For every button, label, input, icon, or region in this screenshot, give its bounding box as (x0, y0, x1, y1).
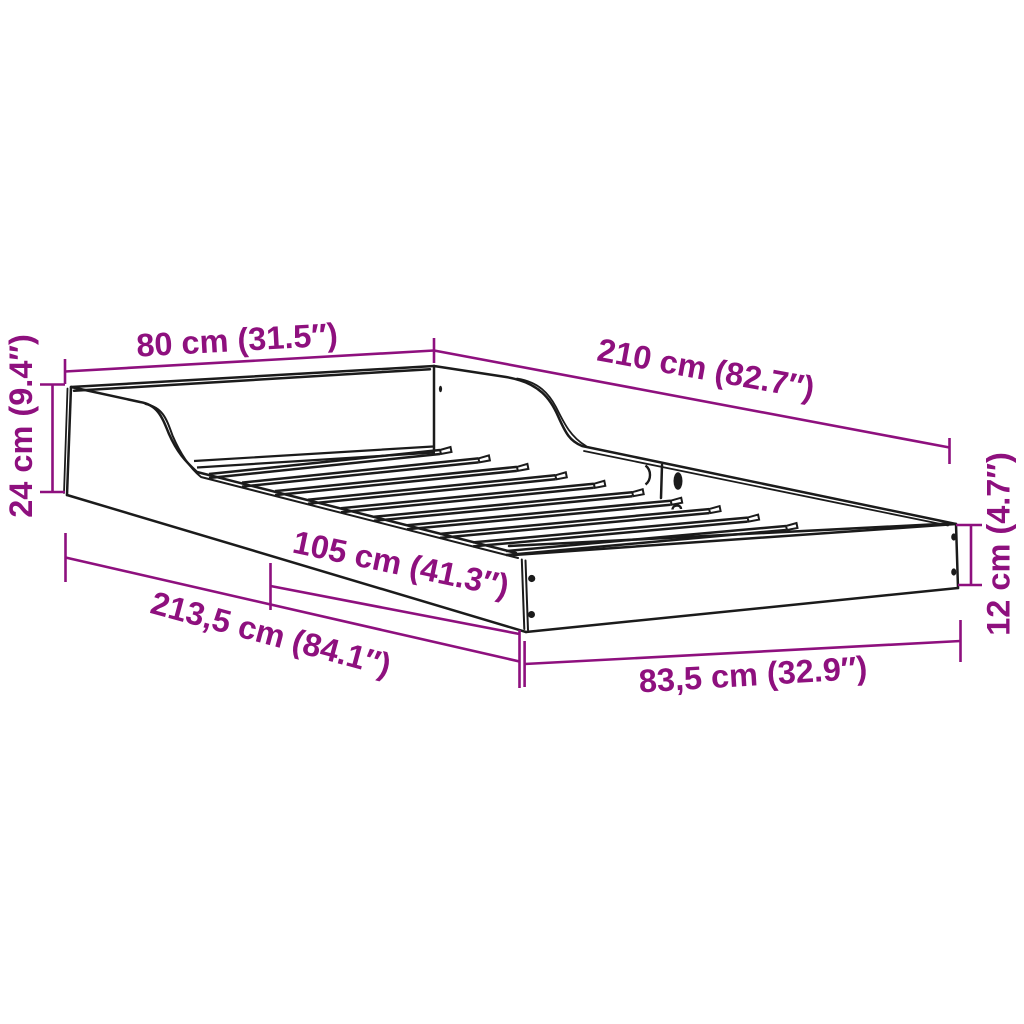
svg-text:12 cm (4.7″): 12 cm (4.7″) (981, 452, 1017, 636)
svg-text:24 cm (9.4″): 24 cm (9.4″) (3, 334, 39, 518)
